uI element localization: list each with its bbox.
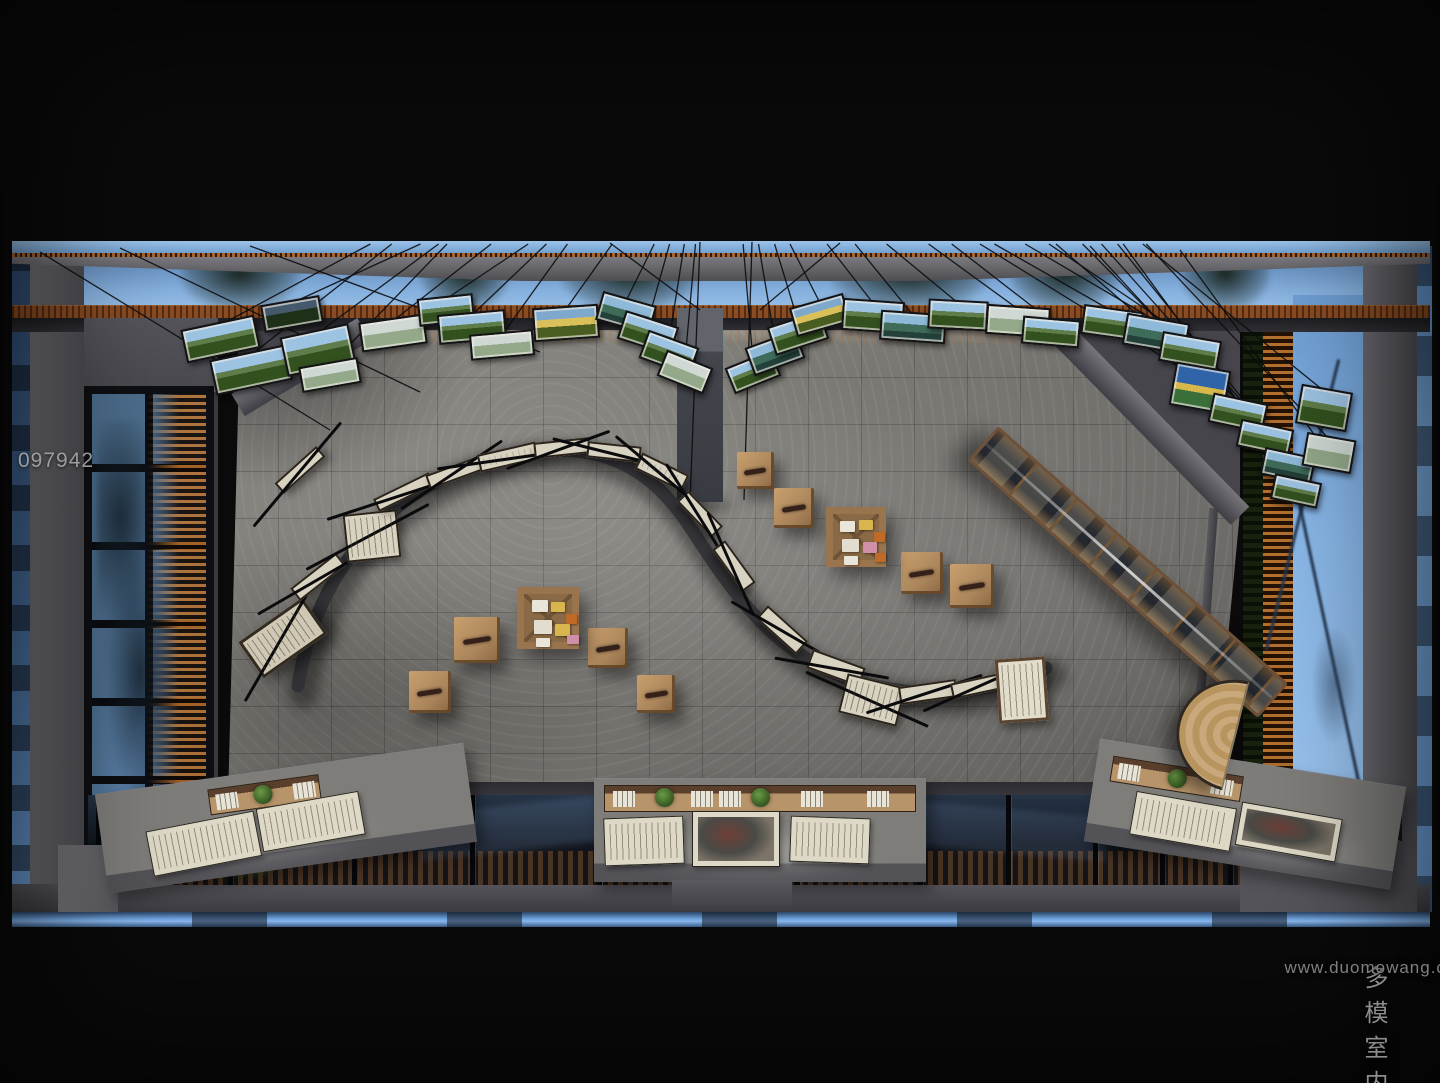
calligraphy-text <box>844 679 900 720</box>
stool-handle-carving <box>909 569 935 578</box>
scroll-stack <box>867 791 889 807</box>
glass-panel-divider <box>1006 795 1011 885</box>
scroll-shelf <box>604 785 916 812</box>
display-easel-stand <box>995 656 1049 723</box>
table-item <box>863 542 877 553</box>
stool-handle-carving <box>959 582 986 591</box>
sky-sliver-left <box>12 245 30 924</box>
bonsai-plant <box>1166 768 1188 790</box>
table-item <box>532 600 548 612</box>
calligraphy-text <box>348 515 396 557</box>
hanging-artwork-frame <box>927 298 988 331</box>
brand-site-url: www.duomowang.com <box>1284 958 1440 978</box>
wood-stool-cube <box>774 488 814 528</box>
stool-handle-carving <box>596 645 620 654</box>
wood-stool-cube <box>588 628 628 668</box>
stool-handle-carving <box>644 691 667 700</box>
table-item <box>566 614 577 624</box>
table-item <box>844 556 858 565</box>
exhibit-platform-center <box>594 778 926 882</box>
scroll-stack <box>691 791 713 807</box>
bonsai-plant <box>655 788 674 807</box>
scroll-stack <box>292 781 316 800</box>
stool-handle-carving <box>417 688 443 697</box>
table-item <box>874 532 885 542</box>
sky-sliver-right <box>1417 246 1432 912</box>
hanging-artwork-frame <box>469 329 535 360</box>
scroll-stack <box>613 791 635 807</box>
scroll-stack <box>215 792 239 811</box>
hanging-artwork-frame <box>1021 316 1081 349</box>
wood-stool-cube <box>409 671 451 713</box>
stool-handle-carving <box>463 636 491 645</box>
hanging-artwork-frame <box>532 304 600 343</box>
table-item <box>536 638 550 647</box>
table-item <box>534 620 552 634</box>
calligraphy-text <box>1001 663 1043 718</box>
stool-handle-carving <box>782 505 806 514</box>
table-item <box>859 520 873 530</box>
watermark-id: 097942 <box>18 449 94 473</box>
wood-stool-cube <box>950 564 994 608</box>
wood-stool-cube <box>637 675 675 713</box>
table-item <box>551 602 565 612</box>
calligraphy-board <box>603 816 685 867</box>
outer-wall-left <box>30 248 84 922</box>
bonsai-plant <box>751 788 770 807</box>
wood-stool-cube <box>901 552 943 594</box>
table-item <box>842 539 859 552</box>
sky-sliver-bottom <box>12 912 1430 927</box>
tea-table <box>517 587 579 649</box>
tea-table <box>826 507 886 567</box>
stool-handle-carving <box>744 467 767 475</box>
table-item <box>567 635 579 644</box>
platform-step <box>672 880 792 906</box>
render-canvas: 097942 多模室内设计网 www.duomowang.com <box>0 0 1440 1083</box>
scroll-stack <box>801 791 823 807</box>
display-easel-stand <box>343 509 402 562</box>
table-item <box>875 553 886 562</box>
scroll-stack <box>1117 763 1141 782</box>
bonsai-plant <box>252 784 273 805</box>
scroll-stack <box>719 791 741 807</box>
wood-stool-cube <box>454 617 500 663</box>
table-item <box>840 521 855 532</box>
wood-stool-cube <box>737 452 774 489</box>
painting-board <box>692 811 780 867</box>
tree-canopy <box>1311 625 1357 745</box>
calligraphy-board <box>1129 791 1237 852</box>
calligraphy-board <box>789 816 871 865</box>
